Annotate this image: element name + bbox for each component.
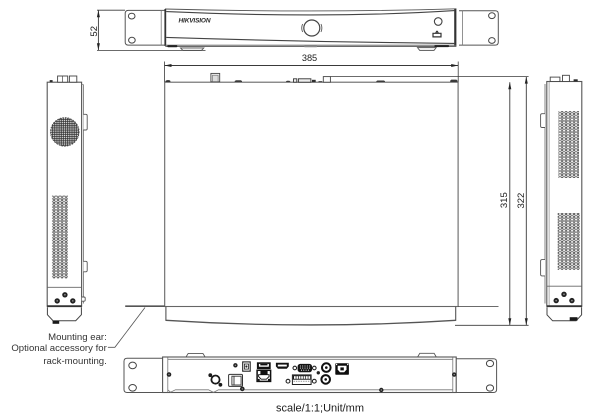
svg-text:385: 385	[302, 53, 317, 63]
svg-text:315: 315	[499, 192, 510, 208]
svg-text:HIKVISION: HIKVISION	[179, 18, 211, 25]
svg-text:scale/1:1;Unit/mm: scale/1:1;Unit/mm	[276, 403, 364, 415]
svg-text:rack-mounting.: rack-mounting.	[43, 356, 106, 367]
svg-text:52: 52	[89, 26, 100, 37]
svg-text:Optional accessory for: Optional accessory for	[11, 343, 107, 354]
svg-text:322: 322	[516, 193, 527, 209]
svg-text:Mounting ear:: Mounting ear:	[48, 332, 107, 343]
